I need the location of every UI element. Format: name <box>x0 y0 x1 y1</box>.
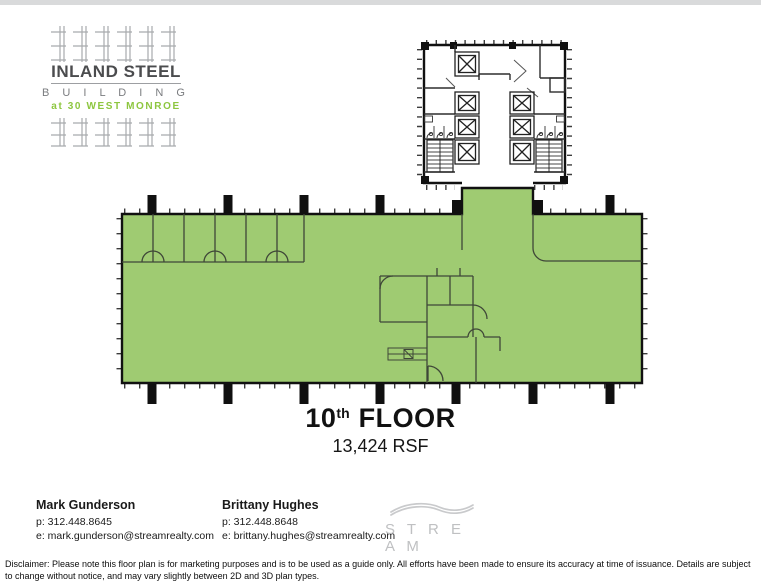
elevator-icon <box>510 116 534 138</box>
contact-card: Mark Gunderson p: 312.448.8645 e: mark.g… <box>36 498 214 543</box>
stream-realty-logo: S T R E A M <box>383 497 483 543</box>
floor-plan-drawing <box>0 0 761 460</box>
stream-wordmark: S T R E A M <box>385 521 483 555</box>
contact-card: Brittany Hughes p: 312.448.8648 e: britt… <box>222 498 395 543</box>
contact-name: Mark Gunderson <box>36 498 214 512</box>
flyer-page: INLAND STEEL B U I L D I N G at 30 WEST … <box>0 0 761 588</box>
elevator-icon <box>455 140 479 164</box>
contact-email: e: brittany.hughes@streamrealty.com <box>222 529 395 543</box>
floor-name: 10thFLOOR <box>0 403 761 434</box>
elevator-icon <box>510 92 534 114</box>
elevator-icon <box>455 92 479 114</box>
contact-phone: p: 312.448.8645 <box>36 515 214 529</box>
floor-ordinal: th <box>336 405 349 421</box>
floor-title-block: 10thFLOOR 13,424 RSF <box>0 403 761 457</box>
elevator-icon <box>455 52 479 76</box>
contact-email: e: mark.gunderson@streamrealty.com <box>36 529 214 543</box>
stream-wave-icon <box>383 497 483 521</box>
floor-area: 13,424 RSF <box>0 436 761 457</box>
floor-word: FLOOR <box>359 403 456 433</box>
contact-phone: p: 312.448.8648 <box>222 515 395 529</box>
elevator-icon <box>455 116 479 138</box>
building-core <box>420 42 570 210</box>
floor-number: 10 <box>305 403 336 433</box>
elevator-icon <box>510 140 534 164</box>
disclaimer-text: Disclaimer: Please note this floor plan … <box>5 559 757 582</box>
leased-area <box>122 188 642 383</box>
contact-name: Brittany Hughes <box>222 498 395 512</box>
tenant-floor-plate <box>119 188 645 404</box>
